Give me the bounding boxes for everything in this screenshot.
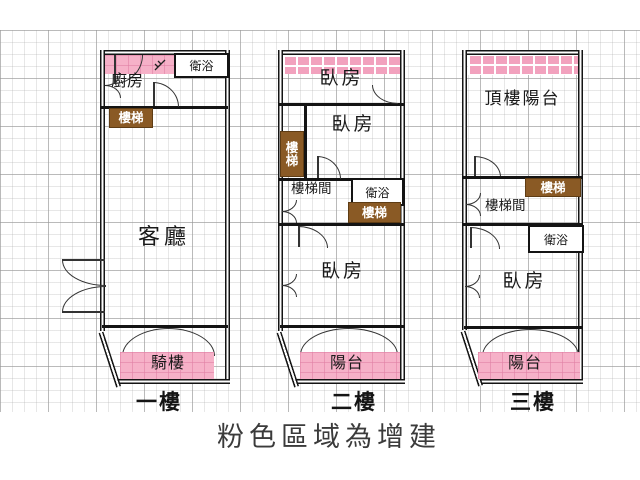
room-label-stairwell: 樓梯間 [485,199,526,213]
wall [462,50,583,55]
stairs-badge: 樓梯 [110,109,152,127]
room-bathroom: 衛浴 [351,178,404,206]
door-leaf [62,311,105,313]
door-swing-arc [348,328,398,355]
wall [99,332,121,388]
room-bathroom: 衛浴 [174,53,229,78]
room-label-balcony: 陽台 [330,355,364,372]
floor-label-2: 二樓 [331,386,377,416]
vent-symbol-icon [152,57,168,73]
door-swing-arc [298,226,328,248]
floor-plan-level-3: 頂樓陽台 樓梯 樓梯間 衛浴 臥房 陽台 [462,48,583,385]
stairs-badge: 樓梯 [349,203,400,222]
door-swing-arc [372,85,398,104]
stairs-label: 樓梯 [281,141,303,167]
door-swing-arc [317,156,341,179]
stairs-label: 樓梯 [118,111,143,124]
room-label-living: 客廳 [138,226,190,249]
stairs-badge: 樓梯 [526,179,580,196]
room-label-bedroom-bottom: 臥房 [293,262,393,282]
wall [478,379,583,384]
wall [294,379,405,384]
stairs-badge-vertical: 樓梯 [281,132,303,176]
room-label-stairwell: 樓梯間 [291,182,332,196]
floor-plan-level-1: 衛浴 廚房 樓梯 客廳 騎樓 [100,48,230,385]
floor-label-3: 三樓 [510,386,556,416]
wall [400,50,405,384]
room-label-bathroom: 衛浴 [365,184,389,201]
window-arc [466,204,481,216]
wall [277,332,299,388]
wall [304,103,307,181]
wall [116,379,230,384]
floor-plan-level-2: 臥房 臥房 樓梯 樓梯間 衛浴 樓梯 臥房 [278,48,405,385]
stairs-label: 樓梯 [362,206,387,219]
room-label-arcade: 騎樓 [151,355,185,372]
door-swing-arc [470,227,500,249]
floor-plan-canvas: 衛浴 廚房 樓梯 客廳 騎樓 [0,0,640,480]
door-swing-arc [300,328,349,355]
legend-caption: 粉色區域為增建 [0,415,640,454]
wall [578,50,583,384]
room-label-bedroom: 臥房 [477,272,572,292]
room-label-roof-balcony: 頂樓陽台 [472,91,573,109]
stairs-label: 樓梯 [540,181,565,194]
door-swing-arc [474,156,501,177]
room-label-bathroom: 衛浴 [544,231,568,248]
door-swing-arc [153,82,179,107]
room-label-balcony: 陽台 [508,355,542,372]
window-arc [282,285,297,297]
window-arc [282,211,297,223]
floor-label-1: 一樓 [136,386,182,416]
wall [278,50,405,55]
room-label-bedroom-mid: 臥房 [307,115,400,135]
room-label-bathroom: 衛浴 [189,57,213,74]
wall [225,50,230,384]
wall [278,103,405,106]
addition-area-roof [468,54,578,75]
room-bathroom: 衛浴 [528,225,584,253]
